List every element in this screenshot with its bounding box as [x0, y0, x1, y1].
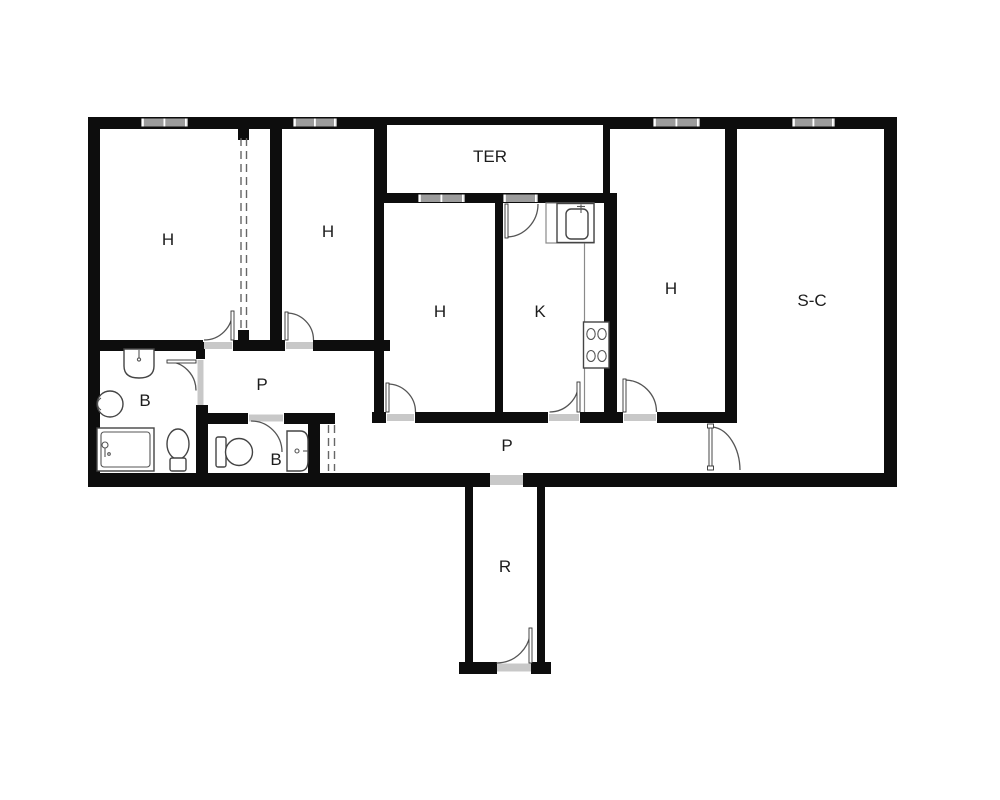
floor-areas — [98, 125, 884, 662]
wall-h1-h2-divider — [270, 129, 282, 340]
room-label-p1: P — [256, 375, 267, 394]
wall-k-bottom-stub — [580, 412, 623, 423]
window-h4 — [653, 119, 700, 127]
wall-outer-bottom-right — [523, 473, 897, 487]
wall-terrace-top — [380, 117, 612, 125]
wall-h3-k-divider — [495, 193, 503, 423]
wall-h2-h3-divider — [374, 125, 384, 423]
threshold-r-door — [497, 664, 531, 672]
wall-partition-stub-bottom — [238, 330, 249, 341]
wall-h1h2-bottom-b — [233, 340, 285, 351]
room-label-h3: H — [434, 302, 446, 321]
threshold-b2-door — [249, 415, 283, 422]
threshold-r-entry — [490, 475, 523, 485]
room-label-b1: B — [139, 391, 150, 410]
window-h3-terrace — [418, 195, 465, 203]
room-label-p2: P — [501, 436, 512, 455]
b1-sink — [124, 349, 154, 378]
room-label-sc: S-C — [797, 291, 826, 310]
floor-plan-canvas: TER H H H K H S-C P P B B R — [0, 0, 1000, 800]
wall-sc-left — [725, 125, 737, 415]
wall-p1-corner-block — [372, 412, 386, 423]
wall-b1-right-upper — [196, 342, 205, 359]
window-h2 — [293, 119, 337, 127]
k-stove — [584, 322, 610, 368]
threshold-h2-door — [286, 342, 313, 349]
wall-h4-bottom — [657, 412, 737, 423]
threshold-b1-door — [198, 360, 204, 405]
wall-r-right — [537, 487, 545, 674]
corridor-p1-floor — [205, 351, 372, 413]
wall-r-bottom-b — [531, 662, 551, 674]
wall-r-bottom-a — [459, 662, 497, 674]
threshold-h1-door — [204, 342, 232, 349]
wall-terrace-right — [603, 117, 610, 197]
threshold-h4-door — [624, 414, 656, 421]
terrace-door-glazing — [503, 195, 538, 203]
room-label-h4: H — [665, 279, 677, 298]
wall-outer-top-right — [604, 117, 897, 129]
wall-partition-stub-top — [238, 129, 249, 140]
room-label-h2: H — [322, 222, 334, 241]
threshold-h3-door — [387, 414, 414, 421]
k-sink — [557, 204, 594, 243]
room-label-k: K — [534, 302, 546, 321]
wall-r-left — [465, 487, 473, 674]
room-h4-floor — [617, 129, 725, 412]
room-label-b2: B — [270, 450, 281, 469]
wall-k-h4-divider — [604, 193, 617, 423]
wall-h3k-bottom — [415, 412, 548, 423]
window-h1 — [141, 119, 188, 127]
wall-outer-right — [884, 117, 897, 487]
wall-b1-right-lower — [196, 405, 208, 473]
wall-outer-bottom-left — [88, 473, 490, 487]
b2-sink — [287, 431, 308, 471]
b1-toilet — [167, 429, 189, 471]
window-sc — [792, 119, 835, 127]
b1-washbasin — [97, 391, 123, 417]
wall-outer-top-left — [88, 117, 384, 129]
room-label-h1: H — [162, 230, 174, 249]
corridor-p2-floor — [320, 423, 725, 473]
wall-b2-right — [308, 413, 320, 473]
room-label-r: R — [499, 557, 511, 576]
floor-plan-page: TER H H H K H S-C P P B B R — [0, 0, 1000, 800]
wall-b2-top-a — [203, 413, 248, 424]
room-label-ter: TER — [473, 147, 507, 166]
threshold-k-door — [549, 414, 579, 421]
b2-toilet — [216, 437, 253, 467]
b1-bathtub — [97, 428, 154, 471]
room-h1-floor — [98, 129, 270, 340]
